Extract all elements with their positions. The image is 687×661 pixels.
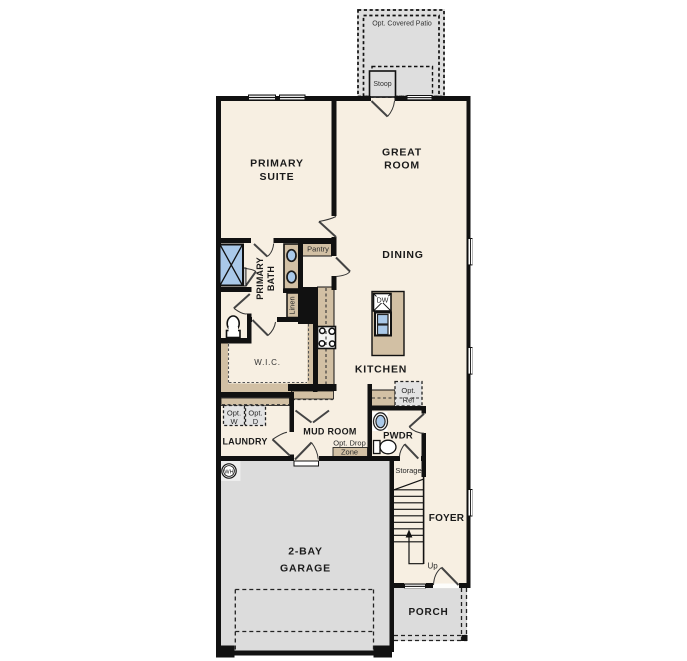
svg-text:LAUNDRY: LAUNDRY bbox=[222, 437, 267, 447]
svg-text:W.I.C.: W.I.C. bbox=[254, 358, 281, 367]
svg-text:D: D bbox=[253, 417, 259, 426]
svg-text:Linen: Linen bbox=[288, 296, 297, 314]
svg-text:DINING: DINING bbox=[382, 249, 424, 261]
svg-text:PORCH: PORCH bbox=[408, 607, 448, 618]
svg-text:Stoop: Stoop bbox=[373, 81, 391, 88]
svg-text:GREAT: GREAT bbox=[382, 147, 422, 159]
svg-text:Opt. Covered Patio: Opt. Covered Patio bbox=[372, 21, 432, 28]
svg-text:Opt. Drop: Opt. Drop bbox=[333, 439, 366, 448]
svg-text:PWDR: PWDR bbox=[383, 431, 413, 442]
svg-text:WH: WH bbox=[224, 469, 233, 475]
svg-text:SUITE: SUITE bbox=[260, 171, 295, 183]
svg-text:Storage: Storage bbox=[395, 466, 421, 475]
svg-text:DW: DW bbox=[377, 298, 389, 305]
svg-text:2-BAY: 2-BAY bbox=[288, 546, 323, 558]
svg-text:Zone: Zone bbox=[341, 448, 358, 457]
svg-text:FOYER: FOYER bbox=[429, 513, 465, 524]
svg-text:Opt.: Opt. bbox=[401, 386, 415, 395]
svg-text:ROOM: ROOM bbox=[384, 160, 420, 172]
svg-text:W: W bbox=[230, 417, 238, 426]
svg-text:PRIMARY: PRIMARY bbox=[255, 257, 265, 300]
svg-text:Pantry: Pantry bbox=[307, 245, 329, 254]
svg-text:PRIMARY: PRIMARY bbox=[250, 158, 304, 170]
svg-text:MUD ROOM: MUD ROOM bbox=[303, 427, 356, 437]
svg-text:BATH: BATH bbox=[266, 266, 276, 291]
svg-text:KITCHEN: KITCHEN bbox=[355, 364, 407, 376]
svg-text:Up: Up bbox=[428, 562, 439, 571]
svg-text:Ref: Ref bbox=[403, 396, 416, 405]
svg-text:GARAGE: GARAGE bbox=[280, 563, 331, 575]
